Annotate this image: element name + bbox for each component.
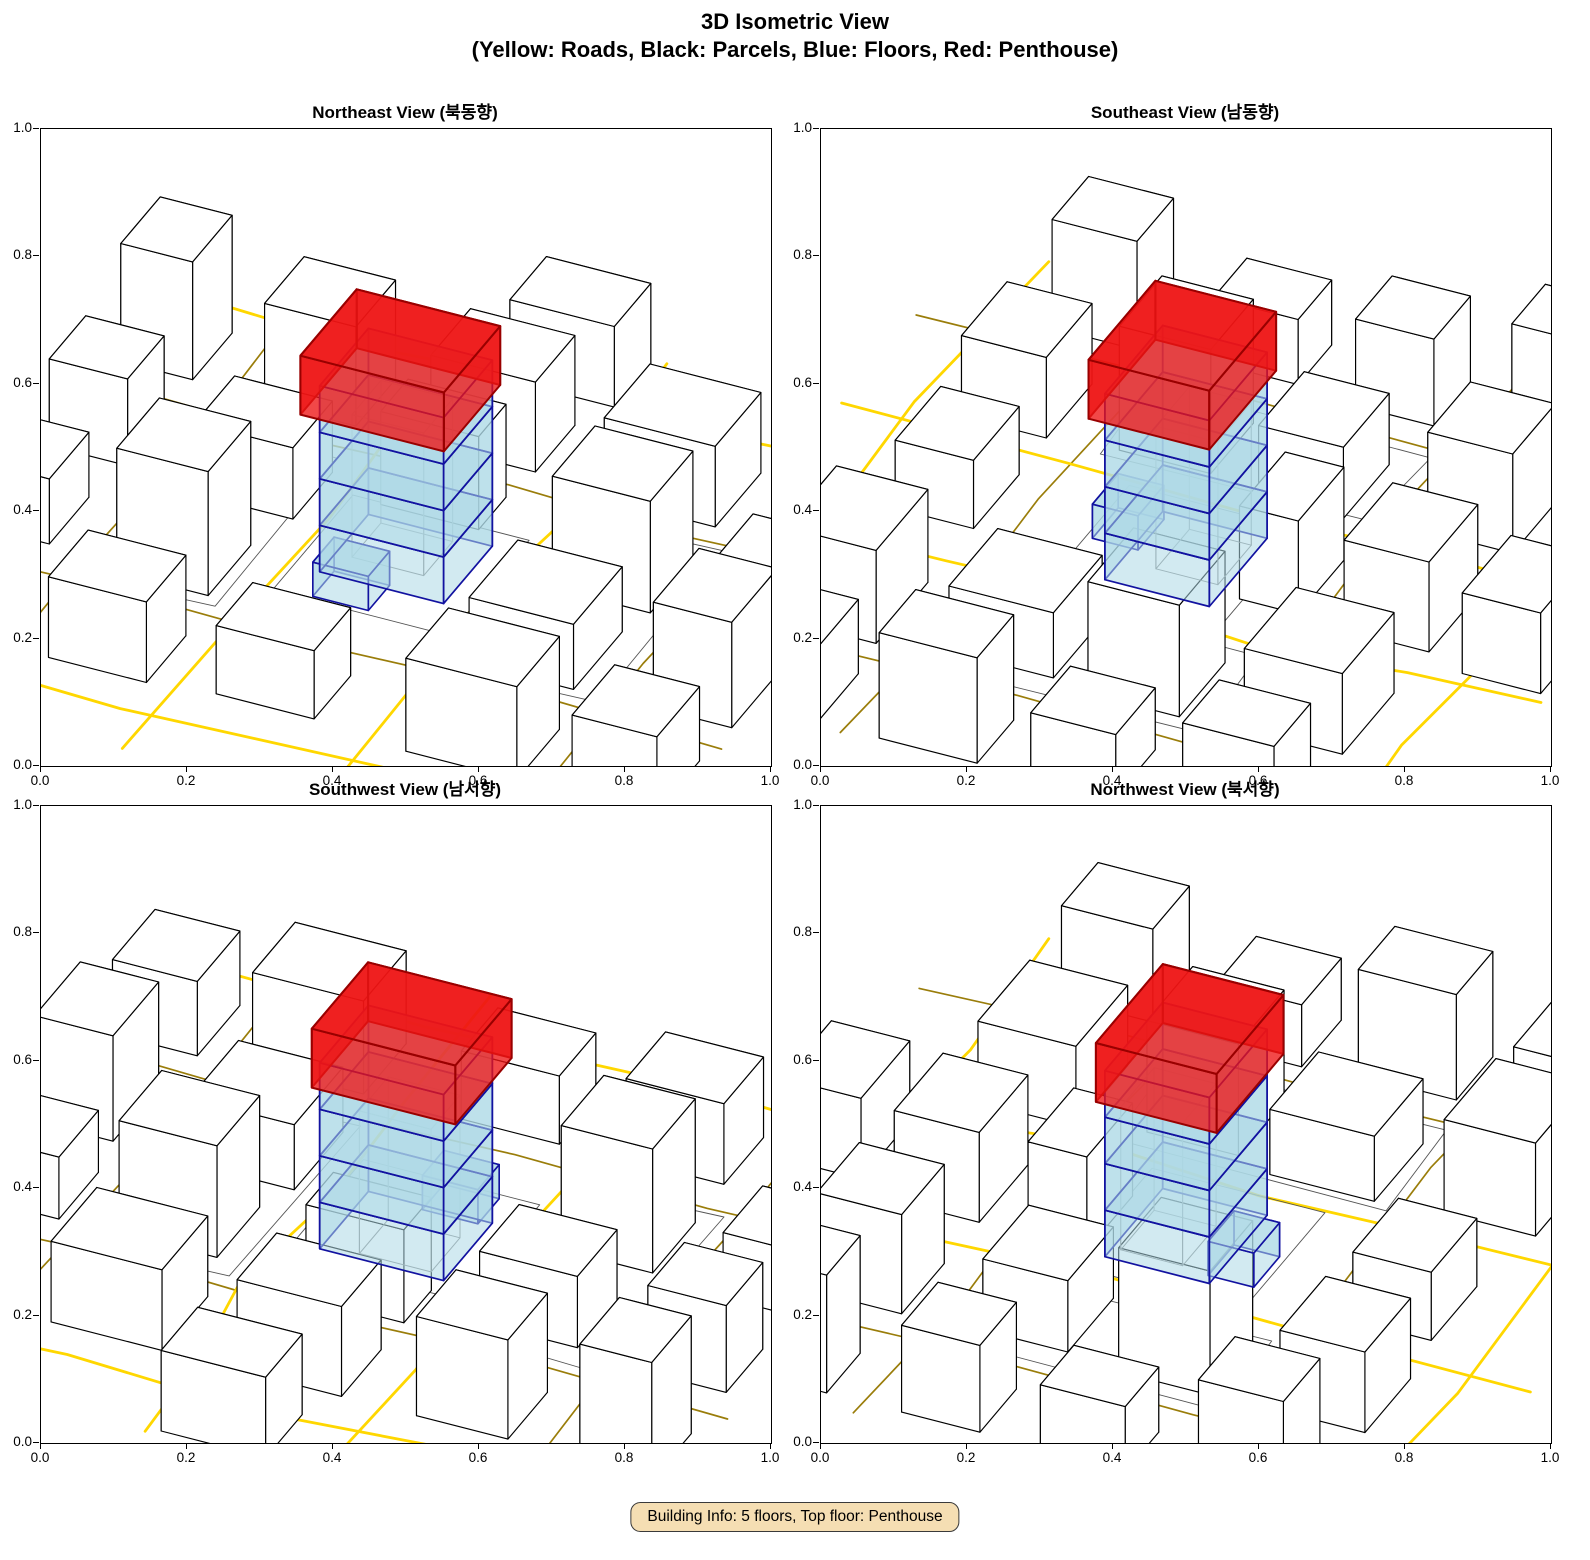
x-tick-mark [624, 766, 625, 772]
x-tick-mark [1550, 1443, 1551, 1449]
x-tick-mark [966, 766, 967, 772]
subplot-title-southwest: Southwest View (남서향) [40, 775, 770, 800]
y-tick-mark [33, 1187, 39, 1188]
x-tick-mark [1112, 1443, 1113, 1449]
subplot-southeast: Southeast View (남동향) 0.00.20.40.60.81.00… [820, 128, 1550, 765]
y-tick-label: 1.0 [776, 797, 812, 812]
y-tick-mark [33, 932, 39, 933]
x-tick-label: 0.2 [946, 1450, 986, 1465]
x-tick-mark [478, 766, 479, 772]
y-tick-mark [33, 510, 39, 511]
y-tick-label: 0.2 [0, 1307, 32, 1322]
subplot-title-northeast: Northeast View (북동향) [40, 98, 770, 123]
y-tick-mark [813, 1315, 819, 1316]
y-tick-mark [33, 1315, 39, 1316]
y-tick-label: 0.8 [776, 924, 812, 939]
x-tick-mark [40, 1443, 41, 1449]
y-tick-label: 0.4 [0, 1179, 32, 1194]
x-tick-mark [478, 1443, 479, 1449]
y-tick-label: 0.6 [776, 375, 812, 390]
y-tick-label: 0.4 [776, 502, 812, 517]
y-tick-mark [813, 1060, 819, 1061]
x-tick-label: 0.6 [1238, 1450, 1278, 1465]
x-tick-mark [770, 766, 771, 772]
y-tick-mark [33, 255, 39, 256]
y-tick-mark [33, 128, 39, 129]
y-tick-mark [813, 255, 819, 256]
y-tick-mark [33, 383, 39, 384]
x-tick-mark [186, 766, 187, 772]
y-tick-label: 1.0 [0, 120, 32, 135]
x-tick-label: 0.6 [458, 1450, 498, 1465]
y-tick-mark [33, 1060, 39, 1061]
y-tick-label: 0.8 [0, 247, 32, 262]
x-tick-label: 0.8 [1384, 1450, 1424, 1465]
y-tick-label: 0.2 [776, 1307, 812, 1322]
y-tick-label: 0.0 [776, 1434, 812, 1449]
x-tick-mark [1550, 766, 1551, 772]
y-tick-mark [813, 932, 819, 933]
y-tick-label: 0.8 [776, 247, 812, 262]
subplot-northwest: Northwest View (북서향) 0.00.20.40.60.81.00… [820, 805, 1550, 1442]
x-tick-mark [332, 766, 333, 772]
x-tick-mark [332, 1443, 333, 1449]
building-info-badge: Building Info: 5 floors, Top floor: Pent… [630, 1502, 959, 1532]
y-tick-mark [33, 1442, 39, 1443]
y-tick-label: 0.0 [776, 757, 812, 772]
x-tick-mark [1258, 1443, 1259, 1449]
subplot-title-northwest: Northwest View (북서향) [820, 775, 1550, 800]
isometric-canvas-northeast [40, 128, 772, 767]
y-tick-mark [813, 128, 819, 129]
subplot-northeast: Northeast View (북동향) 0.00.20.40.60.81.00… [40, 128, 770, 765]
x-tick-mark [1404, 1443, 1405, 1449]
x-tick-label: 1.0 [1530, 1450, 1570, 1465]
x-tick-label: 0.4 [312, 1450, 352, 1465]
y-tick-mark [813, 1442, 819, 1443]
y-tick-label: 0.2 [0, 630, 32, 645]
x-tick-label: 0.4 [1092, 1450, 1132, 1465]
y-tick-mark [813, 383, 819, 384]
y-tick-label: 1.0 [776, 120, 812, 135]
x-tick-mark [1112, 766, 1113, 772]
y-tick-label: 0.8 [0, 924, 32, 939]
x-tick-label: 0.8 [604, 1450, 644, 1465]
x-tick-mark [1258, 766, 1259, 772]
isometric-canvas-southwest [40, 805, 772, 1444]
x-tick-mark [186, 1443, 187, 1449]
x-tick-mark [966, 1443, 967, 1449]
subplot-title-southeast: Southeast View (남동향) [820, 98, 1550, 123]
y-tick-label: 0.2 [776, 630, 812, 645]
y-tick-mark [813, 638, 819, 639]
figure-title: 3D Isometric View [0, 8, 1590, 35]
x-tick-mark [1404, 766, 1405, 772]
y-tick-label: 0.0 [0, 757, 32, 772]
isometric-canvas-southeast [820, 128, 1552, 767]
y-tick-mark [813, 765, 819, 766]
y-tick-label: 0.0 [0, 1434, 32, 1449]
x-tick-mark [624, 1443, 625, 1449]
y-tick-label: 0.4 [776, 1179, 812, 1194]
y-tick-mark [33, 805, 39, 806]
x-tick-label: 1.0 [750, 1450, 790, 1465]
y-tick-label: 1.0 [0, 797, 32, 812]
x-tick-label: 0.0 [800, 1450, 840, 1465]
y-tick-label: 0.6 [0, 375, 32, 390]
subplot-southwest: Southwest View (남서향) 0.00.20.40.60.81.00… [40, 805, 770, 1442]
x-tick-mark [770, 1443, 771, 1449]
y-tick-label: 0.6 [0, 1052, 32, 1067]
y-tick-mark [33, 638, 39, 639]
y-tick-mark [33, 765, 39, 766]
x-tick-mark [40, 766, 41, 772]
x-tick-mark [820, 766, 821, 772]
x-tick-label: 0.0 [20, 1450, 60, 1465]
y-tick-label: 0.4 [0, 502, 32, 517]
x-tick-label: 0.2 [166, 1450, 206, 1465]
y-tick-label: 0.6 [776, 1052, 812, 1067]
y-tick-mark [813, 1187, 819, 1188]
y-tick-mark [813, 805, 819, 806]
isometric-canvas-northwest [820, 805, 1552, 1444]
figure-subtitle-legend: (Yellow: Roads, Black: Parcels, Blue: Fl… [0, 36, 1590, 63]
x-tick-mark [820, 1443, 821, 1449]
y-tick-mark [813, 510, 819, 511]
